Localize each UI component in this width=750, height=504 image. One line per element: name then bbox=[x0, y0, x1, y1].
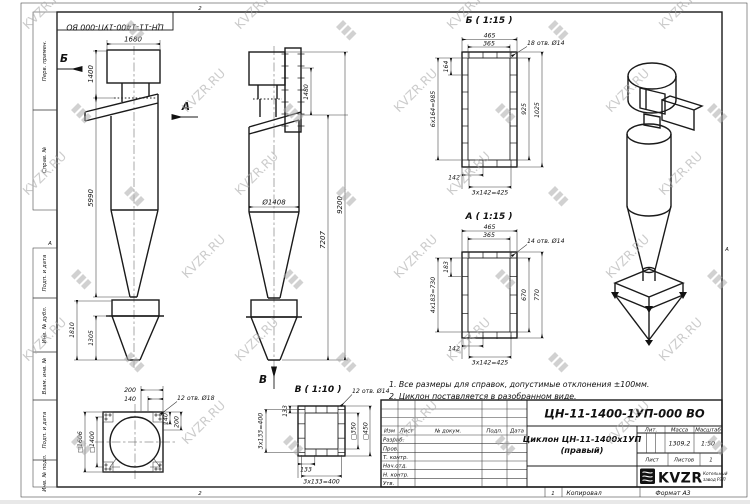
watermark-text: KVZR.RU bbox=[20, 0, 70, 32]
view-label-v: В bbox=[259, 374, 267, 386]
copied-label: Копировал bbox=[566, 490, 601, 497]
kvzr-logo: KVZR Котельный завод РЭП bbox=[640, 469, 728, 487]
row-tkontr: Т. контр. bbox=[383, 455, 408, 461]
mass-value: 1309,2 bbox=[669, 441, 691, 448]
dim-v-pitch-left: 3х133=400 bbox=[258, 413, 265, 449]
label-a-holes: 14 отв. Ø14 bbox=[527, 237, 565, 245]
sidebar-label-4: Взам. инв. № bbox=[42, 357, 48, 394]
sheet-label: Лист bbox=[644, 458, 660, 464]
dim-b-pitch-bottom: 3х142=425 bbox=[472, 190, 508, 197]
mass-label: Масса bbox=[671, 428, 688, 434]
note-line-1: 1. Все размеры для справок, допустимые о… bbox=[389, 380, 649, 389]
dim-side-diameter: Ø1408 bbox=[261, 199, 286, 207]
watermark-logo bbox=[495, 103, 516, 124]
company-line1: Котельный bbox=[703, 471, 728, 476]
dim-side-pipe-height: 1480 bbox=[303, 84, 310, 100]
watermark-text: KVZR.RU bbox=[179, 65, 229, 115]
row-nachotd: Нач.отд. bbox=[383, 464, 407, 470]
watermark-logo bbox=[707, 269, 728, 290]
dim-b-width-outer: 465 bbox=[484, 33, 496, 40]
section-v-title: В ( 1:10 ) bbox=[295, 385, 342, 395]
view-label-b: Б bbox=[60, 53, 68, 65]
format-label: Формат А3 bbox=[655, 490, 690, 497]
dim-a-height-outer: 770 bbox=[534, 289, 541, 301]
sidebar-label-2: Подп. и дата bbox=[42, 255, 48, 292]
sheets-label: Листов bbox=[673, 458, 694, 464]
sidebar-label-6: Инв. № подл. bbox=[42, 454, 48, 491]
label-plan-holes: 12 отв. Ø18 bbox=[177, 394, 215, 402]
watermark-logo bbox=[548, 186, 569, 207]
dim-a-width-inner: 365 bbox=[483, 232, 495, 239]
watermark-logo bbox=[548, 352, 569, 373]
watermark-logo bbox=[548, 20, 569, 41]
dim-side-body-height: 7207 bbox=[319, 231, 327, 249]
watermark-text: KVZR.RU bbox=[603, 65, 653, 115]
dim-b-height-inner: 925 bbox=[521, 103, 528, 115]
fold-mark-right: А bbox=[724, 247, 729, 253]
watermark-text: KVZR.RU bbox=[603, 231, 653, 281]
section-b-title: Б ( 1:15 ) bbox=[466, 16, 513, 26]
fold-mark-left: А bbox=[47, 241, 52, 247]
dim-b-pitch-total: 6х164=985 bbox=[430, 91, 437, 127]
dim-plan-200: 200 bbox=[124, 387, 136, 394]
dim-v-square-outer: □450 bbox=[363, 422, 370, 440]
top-stamp-number: ЦН-11-1400-1УП-000 ВО bbox=[66, 23, 163, 32]
dim-v-edge-left: 133 bbox=[282, 405, 289, 417]
scale-label: Масштаб bbox=[695, 428, 721, 434]
sidebar-label-5: Подп. и дата bbox=[42, 412, 48, 449]
label-v-holes: 12 отв. Ø14 bbox=[352, 387, 390, 395]
drawing-sheet: 2 2 1 А А Копировал Формат А3 ЦН-11-1400… bbox=[0, 0, 750, 500]
dim-front-inlet-height: 1400 bbox=[87, 65, 95, 83]
watermark-logo bbox=[336, 352, 357, 373]
row-utv: Утв. bbox=[383, 481, 394, 487]
section-a-view: А ( 1:15 ) 465 365 14 отв. Ø14 183 4х183… bbox=[430, 212, 565, 367]
dim-v-square-inner: □350 bbox=[351, 422, 358, 440]
dim-b-height-outer: 1025 bbox=[534, 102, 541, 118]
watermark-logo bbox=[707, 103, 728, 124]
dim-a-pitch-total: 4х183=730 bbox=[430, 277, 437, 313]
zone-number-bottom-right: 1 bbox=[551, 491, 554, 497]
zone-number-top: 2 bbox=[198, 6, 202, 12]
label-b-holes: 18 отв. Ø14 bbox=[527, 39, 565, 47]
logo-text: KVZR bbox=[658, 471, 703, 487]
dim-front-cone-height: 1305 bbox=[88, 330, 95, 346]
row-prov: Пров. bbox=[383, 446, 399, 452]
dim-v-edge-bottom: 133 bbox=[300, 467, 312, 474]
company-line2: завод РЭП bbox=[703, 477, 726, 482]
dim-b-pitch: 164 bbox=[443, 61, 450, 73]
sidebar-stamps: Перв. примен. Справ. № Подп. и дата Инв.… bbox=[33, 12, 57, 492]
watermark-text: KVZR.RU bbox=[391, 231, 441, 281]
isometric-view bbox=[611, 63, 702, 346]
watermark-logo bbox=[495, 269, 516, 290]
watermark-logo bbox=[336, 20, 357, 41]
dim-plan-140: 140 bbox=[124, 396, 136, 403]
dim-plan-200-right: 200 bbox=[174, 416, 181, 428]
dim-front-bunker-height: 1810 bbox=[69, 322, 76, 338]
lit-label: Лит. bbox=[644, 428, 657, 434]
dim-a-pitch: 183 bbox=[443, 261, 450, 273]
watermark-text: KVZR.RU bbox=[656, 0, 706, 32]
dim-front-body-height: 5990 bbox=[87, 189, 95, 207]
watermark-text: KVZR.RU bbox=[179, 231, 229, 281]
dim-a-pitch-bottom: 3х142=425 bbox=[472, 360, 508, 367]
part-name-line2: (правый) bbox=[561, 445, 604, 455]
dim-b-width-inner: 365 bbox=[483, 41, 495, 48]
watermark-text: KVZR.RU bbox=[179, 397, 229, 447]
col-podp: Подп. bbox=[486, 429, 502, 435]
dim-v-pitch-bottom: 3х133=400 bbox=[303, 479, 339, 486]
watermark-text: KVZR.RU bbox=[656, 148, 706, 198]
row-nkontr: Н. контр. bbox=[383, 472, 409, 478]
col-doc: № докум. bbox=[434, 429, 462, 435]
watermark-logo bbox=[71, 269, 92, 290]
zone-number-bottom: 2 bbox=[198, 491, 202, 497]
dim-a-width-outer: 465 bbox=[484, 224, 496, 231]
sidebar-label-0: Перв. примен. bbox=[42, 41, 48, 81]
sheets-count: 1 bbox=[709, 458, 712, 464]
dim-a-height-inner: 670 bbox=[521, 289, 528, 301]
dim-plan-140-right: 140 bbox=[163, 413, 170, 425]
section-b-view: Б ( 1:15 ) 465 365 18 отв. Ø14 164 6х164… bbox=[430, 16, 565, 197]
section-a-title: А ( 1:15 ) bbox=[465, 212, 513, 222]
front-view: 1680 1400 5990 1810 1305 Б А bbox=[57, 36, 198, 369]
section-v-view: В ( 1:10 ) 12 отв. Ø14 133 3х133=400 □35… bbox=[258, 385, 390, 486]
drawing-svg: 2 2 1 А А Копировал Формат А3 ЦН-11-1400… bbox=[0, 0, 750, 500]
watermark-text: KVZR.RU bbox=[232, 0, 282, 32]
col-data: Дата bbox=[509, 429, 524, 435]
